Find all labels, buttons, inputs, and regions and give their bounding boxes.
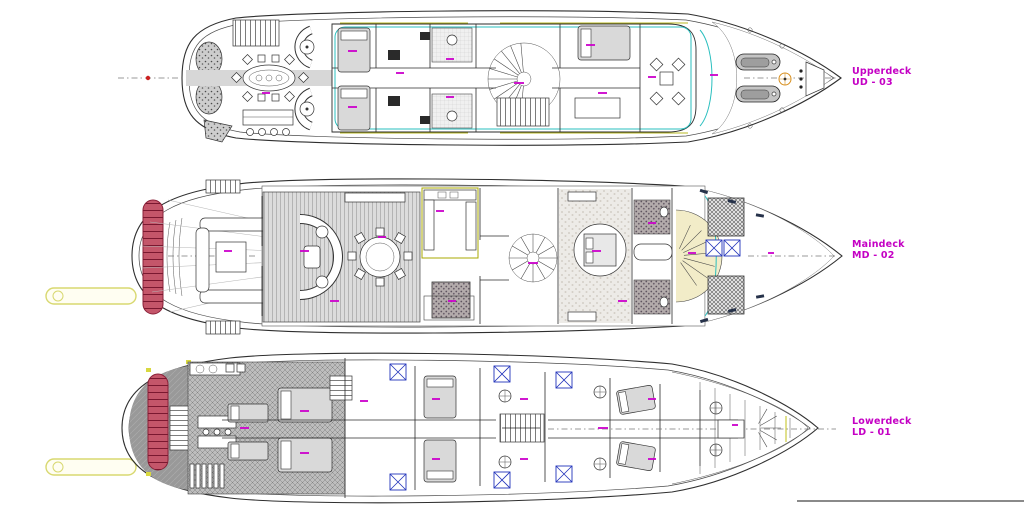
bathtub [634,244,672,260]
stern-sunpads [196,42,232,142]
bow-deck-boxes [706,198,744,314]
salon [262,192,420,322]
stair-flight [497,98,549,126]
maindeck-label-code: MD - 02 [852,250,905,261]
galley [422,188,478,258]
maindeck-plan [46,179,842,334]
crew-area [188,362,352,494]
owner-stateroom [559,189,631,323]
drawing-canvas: Upperdeck UD - 03 Maindeck MD - 02 Lower… [0,0,1024,508]
lowerdeck-label-code: LD - 01 [852,427,911,438]
upperdeck-centerline-aft [118,76,180,80]
owner-bathroom [634,200,672,314]
maindeck-label-name: Maindeck [852,239,905,250]
aft-stair [233,20,279,46]
bow-stair-fan [759,409,782,447]
passerelle [46,288,136,304]
guest-cabins [424,376,722,482]
guest-stair [500,414,544,442]
tender-port [736,86,780,102]
upperdeck-label-name: Upperdeck [852,66,911,77]
compass-rose [779,73,791,85]
passerelle [46,459,136,475]
upperdeck-label: Upperdeck UD - 03 [852,66,911,88]
upperdeck-label-code: UD - 03 [852,77,911,88]
tender-starboard [736,54,780,70]
crew-stair [330,376,352,400]
windshield-arc [700,30,712,126]
transom-steps [167,218,182,296]
lowerdeck-label: Lowerdeck LD - 01 [852,416,911,438]
swim-ladder [148,374,168,470]
aft-bar [243,110,293,136]
swim-ladder [143,200,163,314]
maindeck-label: Maindeck MD - 02 [852,239,905,261]
lowerdeck-label-name: Lowerdeck [852,416,911,427]
upperdeck-plan [118,11,841,145]
lowerdeck-plan [46,353,836,503]
bow-frames [672,372,808,484]
